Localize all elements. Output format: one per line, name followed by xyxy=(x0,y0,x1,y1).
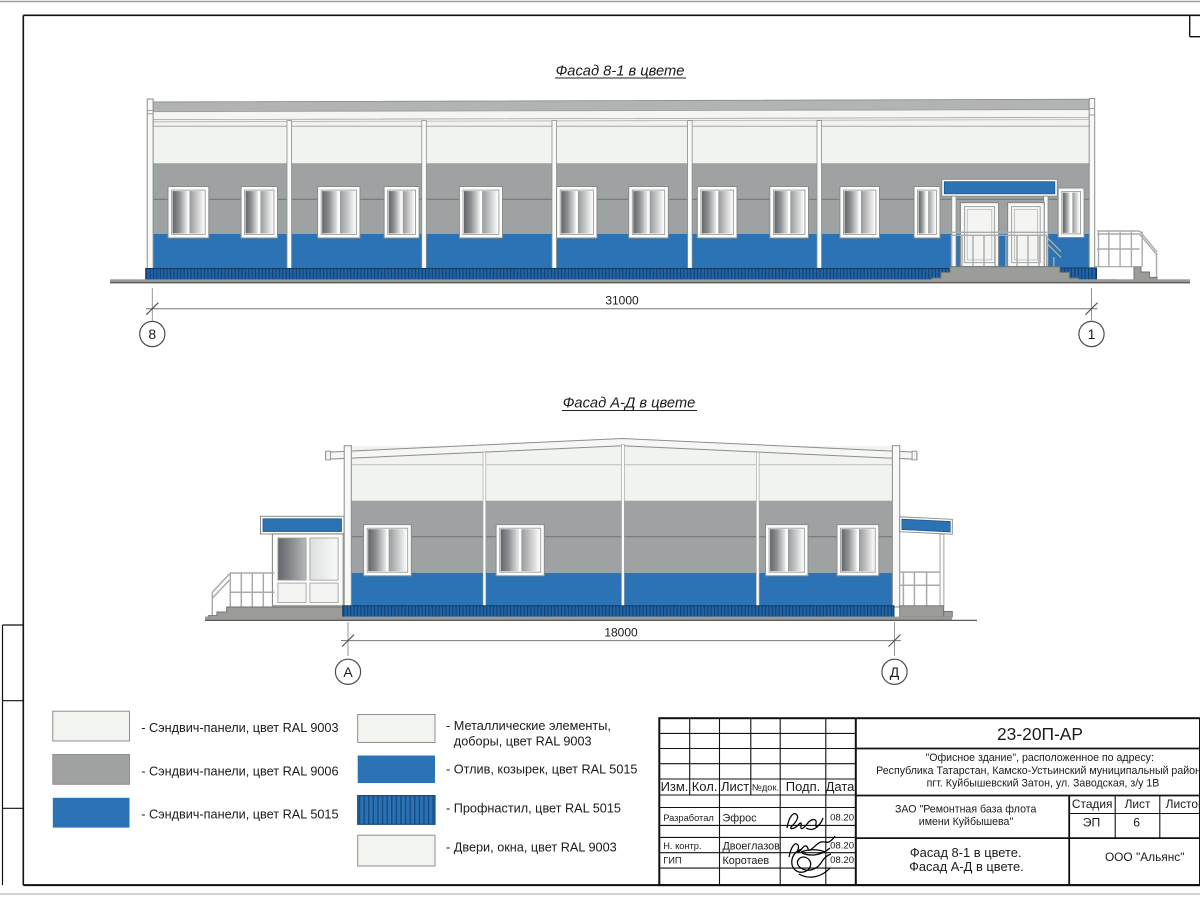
svg-text:Фасад 8-1 в цвете.: Фасад 8-1 в цвете. xyxy=(910,845,1022,860)
svg-text:Д: Д xyxy=(890,664,900,680)
svg-text:Изм.: Изм. xyxy=(661,779,689,794)
svg-text:Подп.: Подп. xyxy=(786,779,821,794)
svg-text:Кол.: Кол. xyxy=(692,779,718,794)
svg-text:- Сэндвич-панели, цвет RAL 501: - Сэндвич-панели, цвет RAL 5015 xyxy=(141,808,338,822)
svg-text:- Металлические элементы,: - Металлические элементы, xyxy=(446,719,611,733)
svg-text:Республика Татарстан, Камско-У: Республика Татарстан, Камско-Устьинский … xyxy=(876,765,1200,777)
svg-text:ЭП: ЭП xyxy=(1083,816,1101,830)
svg-text:23-20П-АР: 23-20П-АР xyxy=(997,724,1083,744)
svg-text:- Отлив, козырек, цвет RAL 501: - Отлив, козырек, цвет RAL 5015 xyxy=(446,763,637,777)
svg-text:31000: 31000 xyxy=(605,294,639,308)
svg-text:- Сэндвич-панели, цвет RAL 900: - Сэндвич-панели, цвет RAL 9003 xyxy=(141,721,338,735)
svg-text:Эфрос: Эфрос xyxy=(723,813,758,825)
svg-text:имени Куйбышева": имени Куйбышева" xyxy=(919,816,1014,828)
svg-text:- Двери, окна, цвет RAL 9003: - Двери, окна, цвет RAL 9003 xyxy=(446,841,617,855)
svg-text:- Сэндвич-панели, цвет RAL 900: - Сэндвич-панели, цвет RAL 9006 xyxy=(141,764,338,778)
svg-text:пгт. Куйбышевский Затон, ул. З: пгт. Куйбышевский Затон, ул. Заводская, … xyxy=(927,778,1160,790)
svg-text:Фасад А-Д в цвете: Фасад А-Д в цвете xyxy=(563,396,696,412)
svg-text:Лист: Лист xyxy=(721,779,749,794)
svg-text:08.20: 08.20 xyxy=(830,841,854,852)
svg-text:ООО "Альянс": ООО "Альянс" xyxy=(1105,850,1185,864)
svg-text:6: 6 xyxy=(1133,816,1140,830)
svg-text:18000: 18000 xyxy=(604,625,638,639)
svg-text:1: 1 xyxy=(1088,326,1096,342)
svg-text:Стадия: Стадия xyxy=(1072,797,1113,811)
svg-text:8: 8 xyxy=(148,326,156,342)
svg-text:Двоеглазов: Двоеглазов xyxy=(723,840,781,852)
svg-text:ЗАО "Ремонтная база флота: ЗАО "Ремонтная база флота xyxy=(895,803,1036,815)
svg-text:Фасад А-Д в цвете.: Фасад А-Д в цвете. xyxy=(909,859,1024,874)
svg-text:Коротаев: Коротаев xyxy=(723,855,770,867)
svg-text:08.20: 08.20 xyxy=(830,855,854,866)
svg-text:ГИП: ГИП xyxy=(663,856,681,866)
svg-text:Дата: Дата xyxy=(826,779,856,794)
svg-text:08.20: 08.20 xyxy=(830,813,854,824)
svg-text:Лист: Лист xyxy=(1125,797,1151,811)
svg-text:Листов: Листов xyxy=(1166,797,1200,811)
svg-text:Разработал: Разработал xyxy=(663,813,714,823)
svg-text:А: А xyxy=(343,664,353,680)
svg-text:- Профнастил, цвет RAL 5015: - Профнастил, цвет RAL 5015 xyxy=(446,802,621,816)
svg-text:№док.: №док. xyxy=(752,782,779,792)
svg-text:доборы, цвет RAL 9003: доборы, цвет RAL 9003 xyxy=(454,735,592,749)
svg-text:"Офисное здание", расположенно: "Офисное здание", расположенное по адрес… xyxy=(925,752,1153,764)
svg-text:Н. контр.: Н. контр. xyxy=(663,841,701,851)
svg-text:Фасад 8-1 в цвете: Фасад 8-1 в цвете xyxy=(556,64,685,80)
